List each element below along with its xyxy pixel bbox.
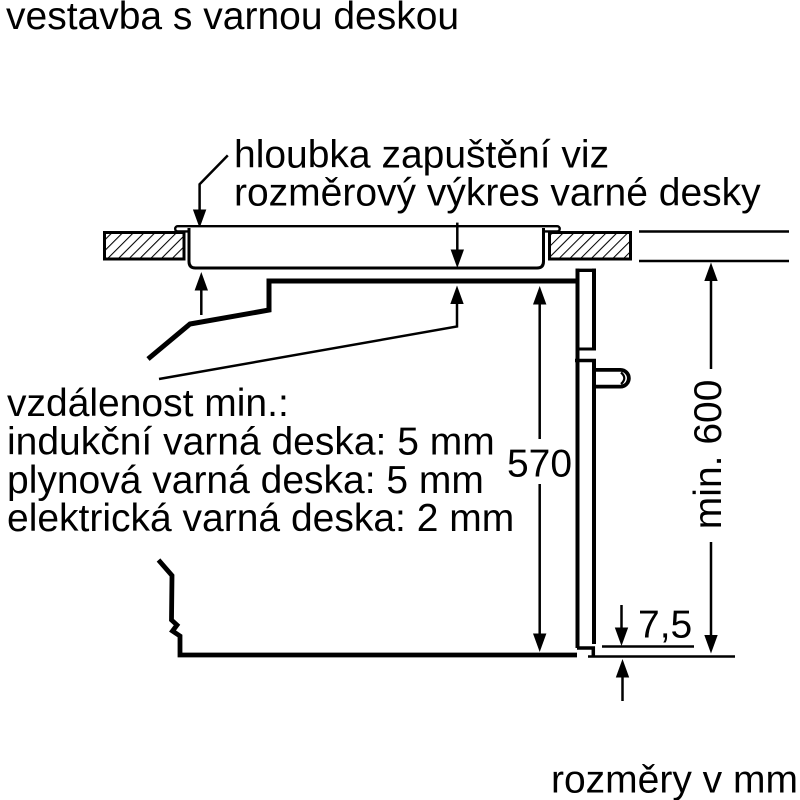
svg-text:rozměry v mm: rozměry v mm [551,759,798,800]
svg-text:570: 570 [507,443,572,486]
svg-text:elektrická varná deska: 2 mm: elektrická varná deska: 2 mm [7,497,514,540]
svg-text:rozměrový výkres varné desky: rozměrový výkres varné desky [234,172,761,215]
svg-text:7,5: 7,5 [638,604,692,647]
svg-text:indukční varná deska: 5 mm: indukční varná deska: 5 mm [7,421,495,464]
svg-text:vestavba s varnou deskou: vestavba s varnou deskou [6,0,459,38]
svg-text:min. 600: min. 600 [687,380,730,530]
svg-text:vzdálenost min.:: vzdálenost min.: [7,382,289,425]
svg-text:hloubka zapuštění viz: hloubka zapuštění viz [234,134,609,177]
svg-text:plynová varná deska: 5 mm: plynová varná deska: 5 mm [7,459,484,502]
